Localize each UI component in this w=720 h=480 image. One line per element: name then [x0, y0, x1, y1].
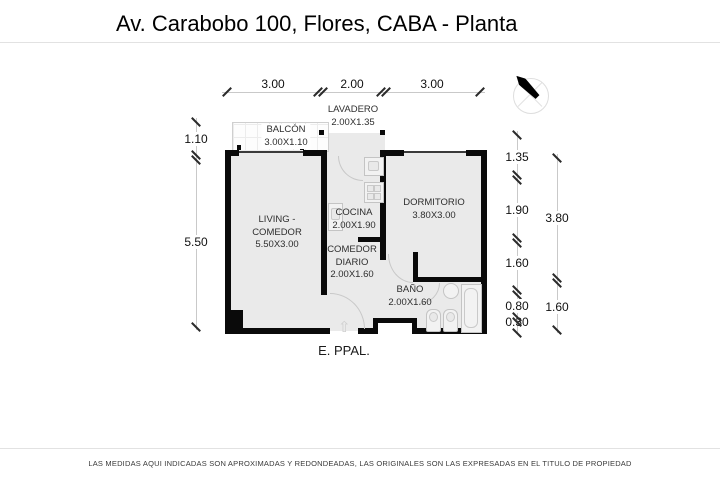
toilet-fixture: [426, 309, 441, 332]
compass-circle: [513, 78, 549, 114]
dim-top-2: 2.00: [338, 77, 365, 91]
floor-plan-page: Av. Carabobo 100, Flores, CABA - Planta: [0, 0, 720, 480]
entrance-arrow-icon: ⇧: [338, 318, 351, 336]
dim-right-inner-2: 1.90: [503, 203, 530, 217]
dim-right-outer-2: 1.60: [543, 300, 570, 314]
entrance-label: E. PPAL.: [318, 343, 370, 358]
label-living-comedor: LIVING - COMEDOR 5.50X3.00: [252, 214, 302, 252]
label-dormitorio: DORMITORIO 3.80X3.00: [403, 197, 465, 222]
dim-left-1: 1.10: [182, 132, 209, 146]
bidet-fixture: [443, 309, 458, 332]
wall-left: [225, 150, 231, 334]
wall-dormitorio-bano: [413, 277, 481, 282]
dim-right-inner-1: 1.35: [503, 150, 530, 164]
stove-fixture: [364, 182, 384, 203]
dim-left-2: 5.50: [182, 235, 209, 249]
label-balcon: BALCÓN 3.00X1.10: [261, 124, 310, 149]
column: [319, 130, 324, 135]
wall-cocina-comedor: [358, 237, 386, 242]
bathroom-sink-fixture: [443, 283, 459, 299]
dim-right-inner-4: 0.80: [503, 299, 530, 313]
dimension-line-left: [196, 118, 197, 330]
dim-right-inner-3: 1.60: [503, 256, 530, 270]
wall-bottom-1: [231, 328, 330, 334]
label-comedor-diario: COMEDOR DIARIO 2.00X1.60: [327, 244, 377, 282]
lavadero-floor: [322, 133, 385, 157]
wall-notch-h: [373, 318, 417, 323]
window-dormitorio: [404, 151, 466, 153]
footer-disclaimer: LAS MEDIDAS AQUI INDICADAS SON APROXIMAD…: [0, 459, 720, 468]
label-cocina: COCINA 2.00X1.90: [332, 207, 375, 232]
dim-right-outer-1: 3.80: [543, 211, 570, 225]
column: [380, 130, 385, 135]
page-title: Av. Carabobo 100, Flores, CABA - Planta: [116, 11, 516, 37]
bathtub-fixture: [461, 284, 482, 333]
window-living: [239, 151, 303, 153]
kitchen-sink-fixture: [364, 157, 384, 176]
header-divider: [0, 42, 720, 43]
dim-top-1: 3.00: [259, 77, 286, 91]
label-lavadero: LAVADERO 2.00X1.35: [328, 104, 378, 129]
dimension-line-top: [222, 92, 485, 93]
exterior-notch: [378, 323, 413, 334]
label-bano: BAÑO 2.00X1.60: [388, 284, 431, 309]
wall-living-cocina: [321, 150, 327, 295]
footer-divider: [0, 448, 720, 449]
dim-top-3: 3.00: [418, 77, 445, 91]
